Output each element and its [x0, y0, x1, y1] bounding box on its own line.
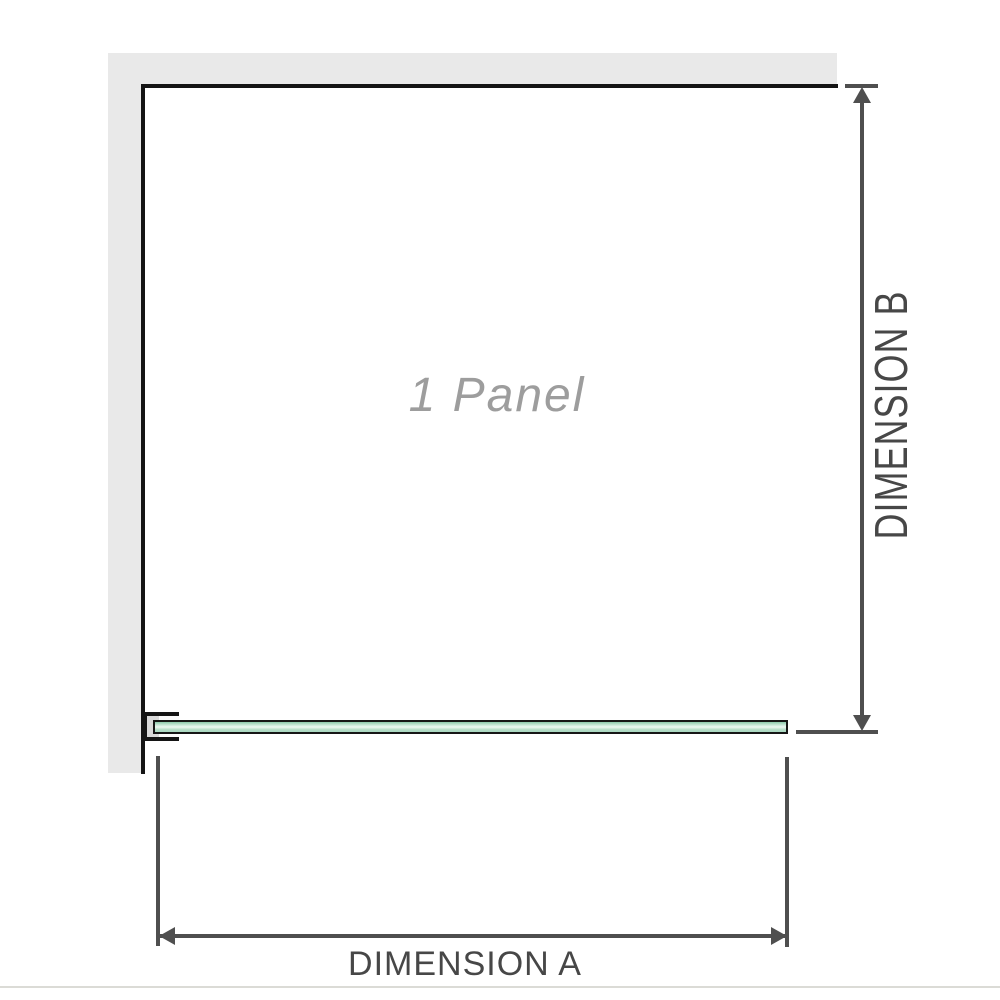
dimension-a-line: [160, 934, 786, 938]
dimension-diagram: 1 Panel DIMENSION B DIMENSION A: [0, 0, 1000, 1000]
dimension-b-label: DIMENSION B: [864, 265, 916, 565]
panel-count-label: 1 Panel: [297, 368, 697, 423]
dimension-a-extension-right: [785, 757, 789, 947]
wall-inner-edge-top: [141, 84, 838, 88]
arrow-left-icon: [159, 927, 175, 945]
wall-inner-edge-left: [141, 84, 145, 774]
wall-left-strip: [108, 53, 143, 773]
wall-top-strip: [108, 53, 837, 86]
dimension-a-extension-left: [156, 756, 160, 946]
dimension-a-label: DIMENSION A: [315, 945, 615, 984]
arrow-right-icon: [771, 927, 787, 945]
glass-panel-bar: [153, 720, 788, 734]
arrow-down-icon: [853, 715, 871, 731]
arrow-up-icon: [853, 87, 871, 103]
bottom-divider-line: [0, 986, 1000, 988]
